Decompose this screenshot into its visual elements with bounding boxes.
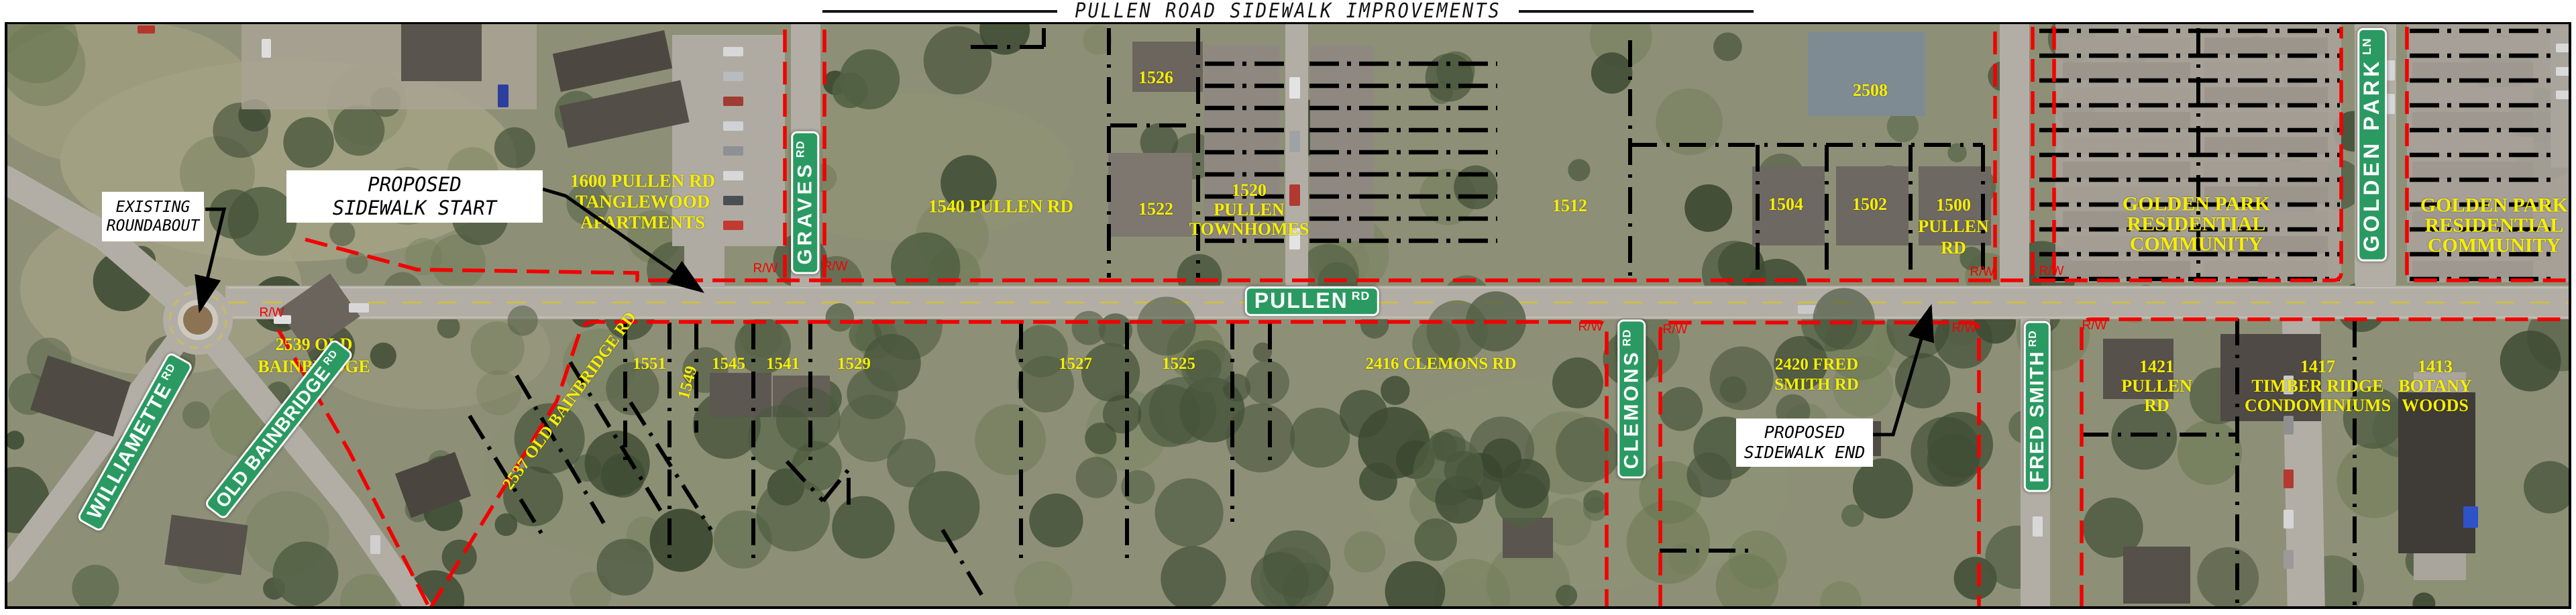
title-rule-right xyxy=(1519,10,1754,13)
parcel-label-line: TANGLEWOOD xyxy=(576,191,710,211)
car xyxy=(349,303,369,313)
parcel-label-line: 2416 CLEMONS RD xyxy=(1365,355,1516,373)
parcel-label-line: TIMBER RIDGE xyxy=(2251,376,2383,396)
car xyxy=(498,85,508,107)
parcel-label-line: 1551 xyxy=(633,355,666,373)
street-sign-golden-park-ln: GOLDEN PARKLN xyxy=(2357,28,2387,262)
callout-existing-roundabout: EXISTINGROUNDABOUT xyxy=(102,192,204,241)
parcel-label-line: RD xyxy=(2144,396,2169,415)
parcel-label-line: 1529 xyxy=(837,355,871,373)
rw-label: R/W xyxy=(823,260,848,274)
sign-suffix: RD xyxy=(2027,330,2039,347)
car xyxy=(2284,510,2294,528)
car xyxy=(2463,506,2478,528)
parcel-label-golden-park-left: GOLDEN PARKRESIDENTIALCOMMUNITY xyxy=(2123,193,2271,256)
car xyxy=(723,146,743,156)
sign-suffix: RD xyxy=(794,140,806,158)
callout-proposed-sidewalk-end: PROPOSEDSIDEWALK END xyxy=(1736,418,1873,467)
car xyxy=(1289,184,1300,206)
parcel-label-line: 1413 xyxy=(2418,357,2453,376)
car xyxy=(723,47,743,56)
parcel-label-line: 1545 xyxy=(712,355,745,373)
parcel-label-1525: 1525 xyxy=(1162,355,1195,373)
parcel-label-1529: 1529 xyxy=(837,355,871,373)
parcel-label-line: GOLDEN PARK xyxy=(2420,194,2569,217)
parcel-label-line: RD xyxy=(1941,238,1966,258)
parcel-label-line: 1526 xyxy=(1138,68,1173,87)
parcel-label-line: COMMUNITY xyxy=(2428,235,2561,257)
parcel-label-1540: 1540 PULLEN RD xyxy=(928,196,1073,216)
callout-text-line: SIDEWALK END xyxy=(1744,443,1866,463)
rw-label: R/W xyxy=(1578,320,1603,334)
sign-name: GOLDEN PARK xyxy=(2359,58,2383,252)
sign-suffix: RD xyxy=(1352,290,1370,303)
sheet-title-bar: PULLEN ROAD SIDEWALK IMPROVEMENTS xyxy=(0,0,2576,22)
parcel-label-line: COMMUNITY xyxy=(2130,233,2263,256)
sheet-title: PULLEN ROAD SIDEWALK IMPROVEMENTS xyxy=(1075,0,1501,23)
parcel-label-line: APARTMENTS xyxy=(580,212,705,232)
rw-label: R/W xyxy=(2082,319,2107,333)
street-sign-graves-rd: GRAVESRD xyxy=(791,131,819,274)
parcel-label-line: 1600 PULLEN RD xyxy=(570,170,715,190)
car xyxy=(723,97,743,106)
street-sign-fred-smith-rd: FRED SMITHRD xyxy=(2024,321,2051,492)
parcel-label-line: PULLEN xyxy=(1214,200,1285,219)
sign-suffix: RD xyxy=(159,361,178,382)
parcel-label-1526: 1526 xyxy=(1138,68,1173,87)
rw-label: R/W xyxy=(1952,321,1977,335)
callout-proposed-sidewalk-start: PROPOSEDSIDEWALK START xyxy=(286,170,543,223)
rw-label: R/W xyxy=(260,306,284,320)
parcel-label-line: SMITH RD xyxy=(1774,376,1859,394)
car xyxy=(2284,469,2294,488)
parcel-label-1502: 1502 xyxy=(1852,194,1887,214)
car xyxy=(2385,60,2395,80)
car xyxy=(723,121,743,131)
parcel-label-1551: 1551 xyxy=(633,355,666,373)
parcel-label-line: 1417 xyxy=(2300,357,2335,376)
car xyxy=(138,25,155,34)
sign-name: GRAVES xyxy=(794,161,816,264)
parcel-label-line: GOLDEN PARK xyxy=(2123,193,2271,215)
parcel-label-1527: 1527 xyxy=(1059,355,1092,373)
aerial-map: R/WR/WR/WR/WR/WR/WR/WR/WR/W 1600 PULLEN … xyxy=(0,0,2576,615)
car xyxy=(2284,550,2294,569)
sign-name: CLEMONS xyxy=(1620,349,1642,469)
parcel-label-line: 1540 PULLEN RD xyxy=(928,196,1073,216)
parcel-label-line: 1520 xyxy=(1232,180,1267,200)
parcel-label-line: 2508 xyxy=(1853,80,1888,100)
parcel-label-1504: 1504 xyxy=(1768,194,1803,214)
street-sign-pullen-rd: PULLENRD xyxy=(1245,286,1379,316)
car xyxy=(723,196,743,205)
sign-suffix: LN xyxy=(2361,38,2374,54)
callout-text-line: EXISTING xyxy=(116,198,191,217)
parcel-label-line: PULLEN xyxy=(2121,376,2192,396)
parcel-label-line: TOWNHOMES xyxy=(1189,219,1309,239)
rw-label: R/W xyxy=(1663,323,1688,337)
parcel-label-line: 1527 xyxy=(1059,355,1092,373)
parcel-label-1600-tanglewood: 1600 PULLEN RDTANGLEWOODAPARTMENTS xyxy=(570,170,715,232)
sign-name: FRED SMITH xyxy=(2027,350,2048,482)
sign-suffix: RD xyxy=(1621,329,1633,347)
parcel-label-line: 1525 xyxy=(1162,355,1195,373)
car xyxy=(1289,77,1300,99)
parcel-label-line: RESIDENTIAL xyxy=(2425,215,2564,237)
parcel-label-line: 1500 xyxy=(1936,195,1971,215)
title-rule-left xyxy=(822,10,1057,13)
callout-text-line: PROPOSED xyxy=(1764,423,1845,443)
sign-suffix: RD xyxy=(321,347,340,368)
parcel-label-line: 1512 xyxy=(1552,196,1587,215)
parcel-label-2416: 2416 CLEMONS RD xyxy=(1365,355,1516,373)
car xyxy=(1289,131,1300,152)
car xyxy=(723,171,743,180)
callout-text-line: ROUNDABOUT xyxy=(107,217,199,235)
parcel-label-line: 1522 xyxy=(1138,199,1173,219)
car xyxy=(370,535,380,554)
callout-text-line: SIDEWALK START xyxy=(333,197,496,220)
callout-text-line: PROPOSED xyxy=(368,173,462,197)
parcel-label-line: 1504 xyxy=(1768,194,1803,214)
parcel-label-1545: 1545 xyxy=(712,355,745,373)
car xyxy=(723,72,743,81)
parcel-label-line: 1502 xyxy=(1852,194,1887,214)
car xyxy=(723,221,743,230)
rw-label: R/W xyxy=(2039,264,2064,278)
parcel-label-2508: 2508 xyxy=(1853,80,1888,100)
rw-label: R/W xyxy=(753,262,778,276)
parcel-label-line: 2420 FRED xyxy=(1775,355,1858,374)
parcel-label-line: PULLEN xyxy=(1918,217,1989,236)
parcel-label-1541: 1541 xyxy=(766,355,800,373)
car xyxy=(2284,416,2294,435)
car xyxy=(2033,516,2043,537)
street-sign-clemons-rd: CLEMONSRD xyxy=(1617,320,1646,479)
parcel-label-1522: 1522 xyxy=(1138,199,1173,219)
parcel-label-line: WOODS xyxy=(2402,396,2469,415)
sign-name: PULLEN xyxy=(1254,288,1348,313)
parcel-label-golden-park-right: GOLDEN PARKRESIDENTIALCOMMUNITY xyxy=(2420,194,2569,257)
parcel-label-line: CONDOMINIUMS xyxy=(2245,396,2391,415)
parcel-label-line: RESIDENTIAL xyxy=(2127,213,2266,235)
car xyxy=(262,39,271,58)
parcel-label-line: BOTANY xyxy=(2398,376,2472,396)
car xyxy=(2385,94,2395,114)
parcel-label-line: 1421 xyxy=(2139,357,2174,376)
rw-label: R/W xyxy=(1970,265,1995,279)
parcel-label-line: 1541 xyxy=(766,355,800,373)
parcel-label-1512: 1512 xyxy=(1552,196,1587,215)
